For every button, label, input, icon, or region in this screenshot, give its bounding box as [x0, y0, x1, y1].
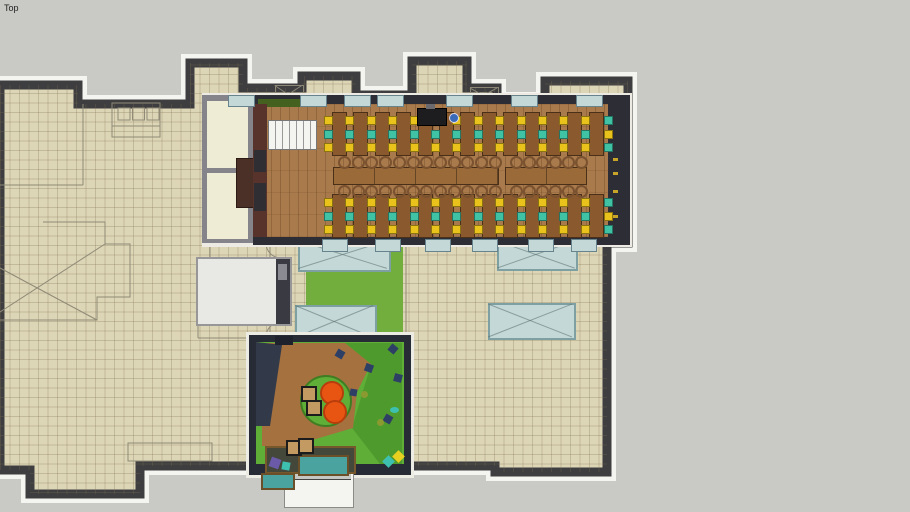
student-chair	[495, 198, 504, 207]
student-chair	[559, 130, 568, 139]
student-chair	[559, 225, 568, 234]
table-chair	[448, 156, 461, 169]
student-chair	[559, 198, 568, 207]
student-chair	[367, 225, 376, 234]
student-chair	[559, 212, 568, 221]
long-table	[505, 167, 587, 185]
student-chair	[367, 130, 376, 139]
student-chair	[324, 225, 333, 234]
table-chair	[489, 185, 502, 198]
window-tab	[228, 95, 255, 107]
table-chair	[489, 156, 502, 169]
appliance	[254, 183, 266, 211]
wall-graphic-dash	[613, 172, 618, 175]
student-chair	[474, 212, 483, 221]
pouf	[323, 400, 347, 424]
student-chair	[388, 198, 397, 207]
student-chair	[538, 143, 547, 152]
interior-wall-lines	[0, 0, 910, 512]
student-chair	[431, 143, 440, 152]
student-chair	[538, 130, 547, 139]
student-chair	[538, 116, 547, 125]
student-chair	[517, 198, 526, 207]
student-chair	[581, 143, 590, 152]
student-chair	[517, 116, 526, 125]
student-chair	[604, 130, 613, 139]
table-chair	[536, 156, 549, 169]
student-chair	[538, 198, 547, 207]
student-chair	[431, 225, 440, 234]
student-chair	[581, 198, 590, 207]
student-chair	[581, 212, 590, 221]
table-chair	[536, 185, 549, 198]
student-chair	[410, 143, 419, 152]
student-chair	[495, 212, 504, 221]
student-chair	[474, 143, 483, 152]
table-chair	[475, 185, 488, 198]
student-chair	[581, 116, 590, 125]
student-chair	[431, 130, 440, 139]
window-tab	[528, 239, 554, 252]
toy	[361, 391, 368, 398]
copier-equipment	[417, 108, 447, 126]
window-tab	[375, 239, 401, 252]
student-chair	[517, 212, 526, 221]
student-chair	[604, 225, 613, 234]
table-chair	[562, 185, 575, 198]
copier-tray	[426, 104, 435, 109]
toy	[281, 461, 290, 470]
window-tab	[425, 239, 451, 252]
student-chair	[410, 212, 419, 221]
student-chair	[452, 130, 461, 139]
student-chair	[604, 212, 613, 221]
student-chair	[431, 198, 440, 207]
student-chair	[367, 116, 376, 125]
table-chair	[549, 185, 562, 198]
table-chair	[379, 185, 392, 198]
table-chair	[407, 185, 420, 198]
wall-graphic-dash	[613, 190, 618, 193]
table-chair	[393, 185, 406, 198]
student-chair	[410, 198, 419, 207]
table-chair	[407, 156, 420, 169]
table-chair	[549, 156, 562, 169]
student-chair	[410, 225, 419, 234]
wall-graphic-dash	[613, 215, 618, 218]
student-chair	[388, 130, 397, 139]
student-chair	[495, 143, 504, 152]
person-figure	[449, 113, 459, 123]
student-chair	[581, 225, 590, 234]
student-chair	[345, 130, 354, 139]
pond-small	[261, 473, 295, 490]
student-chair	[495, 225, 504, 234]
cube-seat	[298, 438, 314, 454]
table-chair	[448, 185, 461, 198]
student-chair	[367, 212, 376, 221]
student-chair	[367, 198, 376, 207]
student-chair	[367, 143, 376, 152]
window-tab	[446, 95, 473, 107]
table-chair	[575, 185, 588, 198]
elevator-panel	[278, 264, 287, 280]
window-tab	[576, 95, 603, 107]
student-chair	[604, 198, 613, 207]
student-chair	[388, 143, 397, 152]
toy	[377, 419, 384, 426]
table-chair	[510, 185, 523, 198]
student-chair	[495, 116, 504, 125]
student-chair	[388, 212, 397, 221]
student-chair	[538, 212, 547, 221]
toy	[390, 407, 399, 413]
table-chair	[434, 185, 447, 198]
table-chair	[393, 156, 406, 169]
student-chair	[452, 198, 461, 207]
student-chair	[324, 116, 333, 125]
student-chair	[324, 198, 333, 207]
student-chair	[345, 212, 354, 221]
table-chair	[338, 185, 351, 198]
table-chair	[352, 156, 365, 169]
student-chair	[345, 198, 354, 207]
door-block	[275, 336, 293, 345]
student-chair	[388, 116, 397, 125]
student-chair	[474, 130, 483, 139]
anteroom	[202, 95, 253, 243]
table-chair	[434, 156, 447, 169]
window-tab	[472, 239, 498, 252]
elevator-box	[196, 257, 292, 326]
cubby-shelf	[268, 120, 317, 150]
student-chair	[324, 143, 333, 152]
table-chair	[523, 185, 536, 198]
student-chair	[431, 212, 440, 221]
student-chair	[604, 116, 613, 125]
student-chair	[345, 225, 354, 234]
student-chair	[517, 225, 526, 234]
cube-seat	[306, 400, 322, 416]
window-tab	[322, 239, 348, 252]
student-chair	[474, 116, 483, 125]
window-tab	[511, 95, 538, 107]
student-chair	[324, 212, 333, 221]
window-tab	[571, 239, 597, 252]
appliance	[254, 150, 266, 172]
student-chair	[452, 143, 461, 152]
table-chair	[352, 185, 365, 198]
wall-graphic-dash	[613, 158, 618, 161]
student-chair	[474, 198, 483, 207]
table-chair	[575, 156, 588, 169]
student-chair	[495, 130, 504, 139]
window-tab	[344, 95, 371, 107]
student-desk	[589, 194, 604, 238]
student-chair	[538, 225, 547, 234]
student-chair	[345, 143, 354, 152]
view-label: Top	[4, 3, 19, 13]
student-chair	[559, 143, 568, 152]
student-chair	[517, 130, 526, 139]
student-chair	[517, 143, 526, 152]
student-chair	[388, 225, 397, 234]
student-chair	[324, 130, 333, 139]
viewport-canvas[interactable]: Top	[0, 0, 910, 512]
table-chair	[510, 156, 523, 169]
student-chair	[452, 212, 461, 221]
window-tab	[377, 95, 404, 107]
student-chair	[581, 130, 590, 139]
climb-hold	[349, 388, 357, 396]
student-chair	[559, 116, 568, 125]
student-chair	[604, 143, 613, 152]
long-table	[333, 167, 499, 185]
student-chair	[474, 225, 483, 234]
pond	[298, 455, 349, 476]
student-chair	[452, 225, 461, 234]
student-desk	[589, 112, 604, 156]
table-chair	[338, 156, 351, 169]
student-chair	[410, 130, 419, 139]
table-chair	[562, 156, 575, 169]
table-chair	[475, 156, 488, 169]
student-chair	[345, 116, 354, 125]
table-chair	[523, 156, 536, 169]
table-chair	[379, 156, 392, 169]
window-tab	[300, 95, 327, 107]
